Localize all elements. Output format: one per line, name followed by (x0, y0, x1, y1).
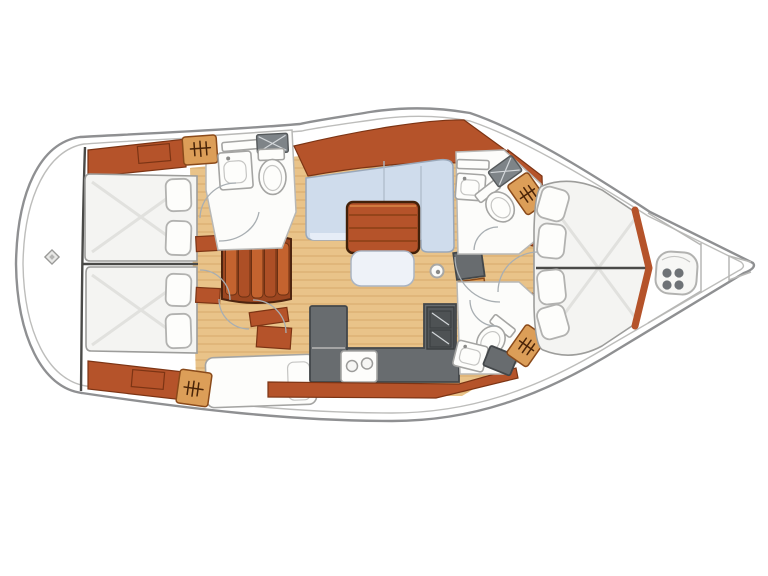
windlass-icon (655, 251, 699, 296)
pillow (165, 179, 191, 212)
pillow (536, 269, 566, 306)
aft-cabin-port (85, 174, 197, 261)
shelf-slot (457, 159, 489, 169)
salon-table (347, 202, 419, 253)
pillow (536, 223, 566, 260)
galley-sink-unit (341, 351, 377, 382)
hanging-locker (182, 135, 218, 165)
pillow (165, 314, 191, 349)
sink (218, 151, 254, 190)
pillow (165, 274, 191, 307)
yacht-floor-plan (0, 0, 768, 576)
floor-plan-canvas (0, 0, 768, 576)
toilet (258, 149, 287, 195)
mast-post (431, 265, 444, 278)
bench-seat (351, 251, 414, 286)
trim-block (196, 287, 221, 303)
aft-cabin-starboard (86, 267, 197, 353)
hanging-locker (176, 369, 212, 407)
pillow (165, 221, 191, 256)
stove (427, 307, 454, 349)
